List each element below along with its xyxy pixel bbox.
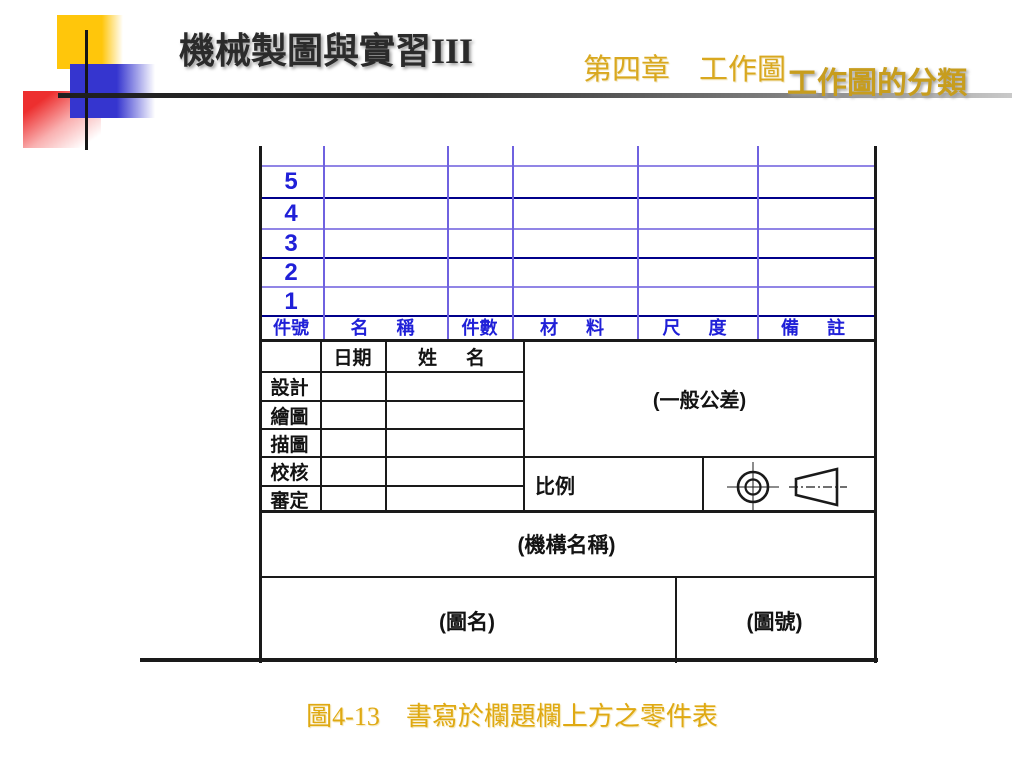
column-header-material: 材 料 [512,315,637,339]
parts-grid-line [512,146,514,341]
column-header-qty: 件數 [447,315,512,339]
parts-grid-line [447,146,449,341]
parts-grid-line [259,197,877,199]
part-row-number: 5 [259,167,323,197]
column-header-remarks: 備 註 [757,315,874,339]
row-label-drafting: 繪圖 [259,402,320,428]
course-title: 機械製圖與實習III [179,22,473,74]
drawing-number-cell: (圖號) [675,578,874,663]
decor-vertical-line [85,30,88,150]
row-label-approval: 審定 [259,487,320,511]
parts-grid-line [757,146,759,341]
scale-label: 比例 [535,458,635,510]
parts-grid-line [323,146,325,341]
date-header: 日期 [320,342,385,370]
figure-caption: 圖4-13 書寫於欄題欄上方之零件表 [0,696,1024,733]
part-row-number: 1 [259,288,323,315]
third-angle-projection-symbol [704,457,874,513]
table-right-border [874,146,877,663]
row-label-design: 設計 [259,373,320,400]
parts-grid-line [637,146,639,341]
row-label-tracing: 描圖 [259,430,320,456]
part-row-number: 4 [259,199,323,228]
column-header-name: 名 稱 [323,315,447,339]
column-header-part-no: 件號 [259,315,323,339]
section-title: 工作圖的分類 [787,58,967,102]
part-row-number: 3 [259,230,323,257]
parts-grid-line [259,228,877,230]
name-header: 姓 名 [385,342,523,370]
column-header-dimension: 尺 度 [637,315,757,339]
parts-grid-line [259,286,877,288]
drawing-name-cell: (圖名) [259,578,675,663]
parts-table-figure: 5 4 3 2 1 件號 名 稱 件數 材 料 尺 度 備 註 日期 姓 名 設… [259,146,877,663]
drawing-bottom-border [140,658,878,662]
parts-grid-line [259,257,877,259]
decor-yellow-square [57,15,123,69]
parts-grid-line [259,165,877,167]
organization-name-cell: (機構名稱) [259,512,874,576]
chapter-title: 第四章 工作圖 [583,46,786,88]
general-tolerance-cell: (一般公差) [525,341,874,456]
decor-blue-square [70,64,155,118]
row-label-checking: 校核 [259,458,320,485]
part-row-number: 2 [259,259,323,286]
